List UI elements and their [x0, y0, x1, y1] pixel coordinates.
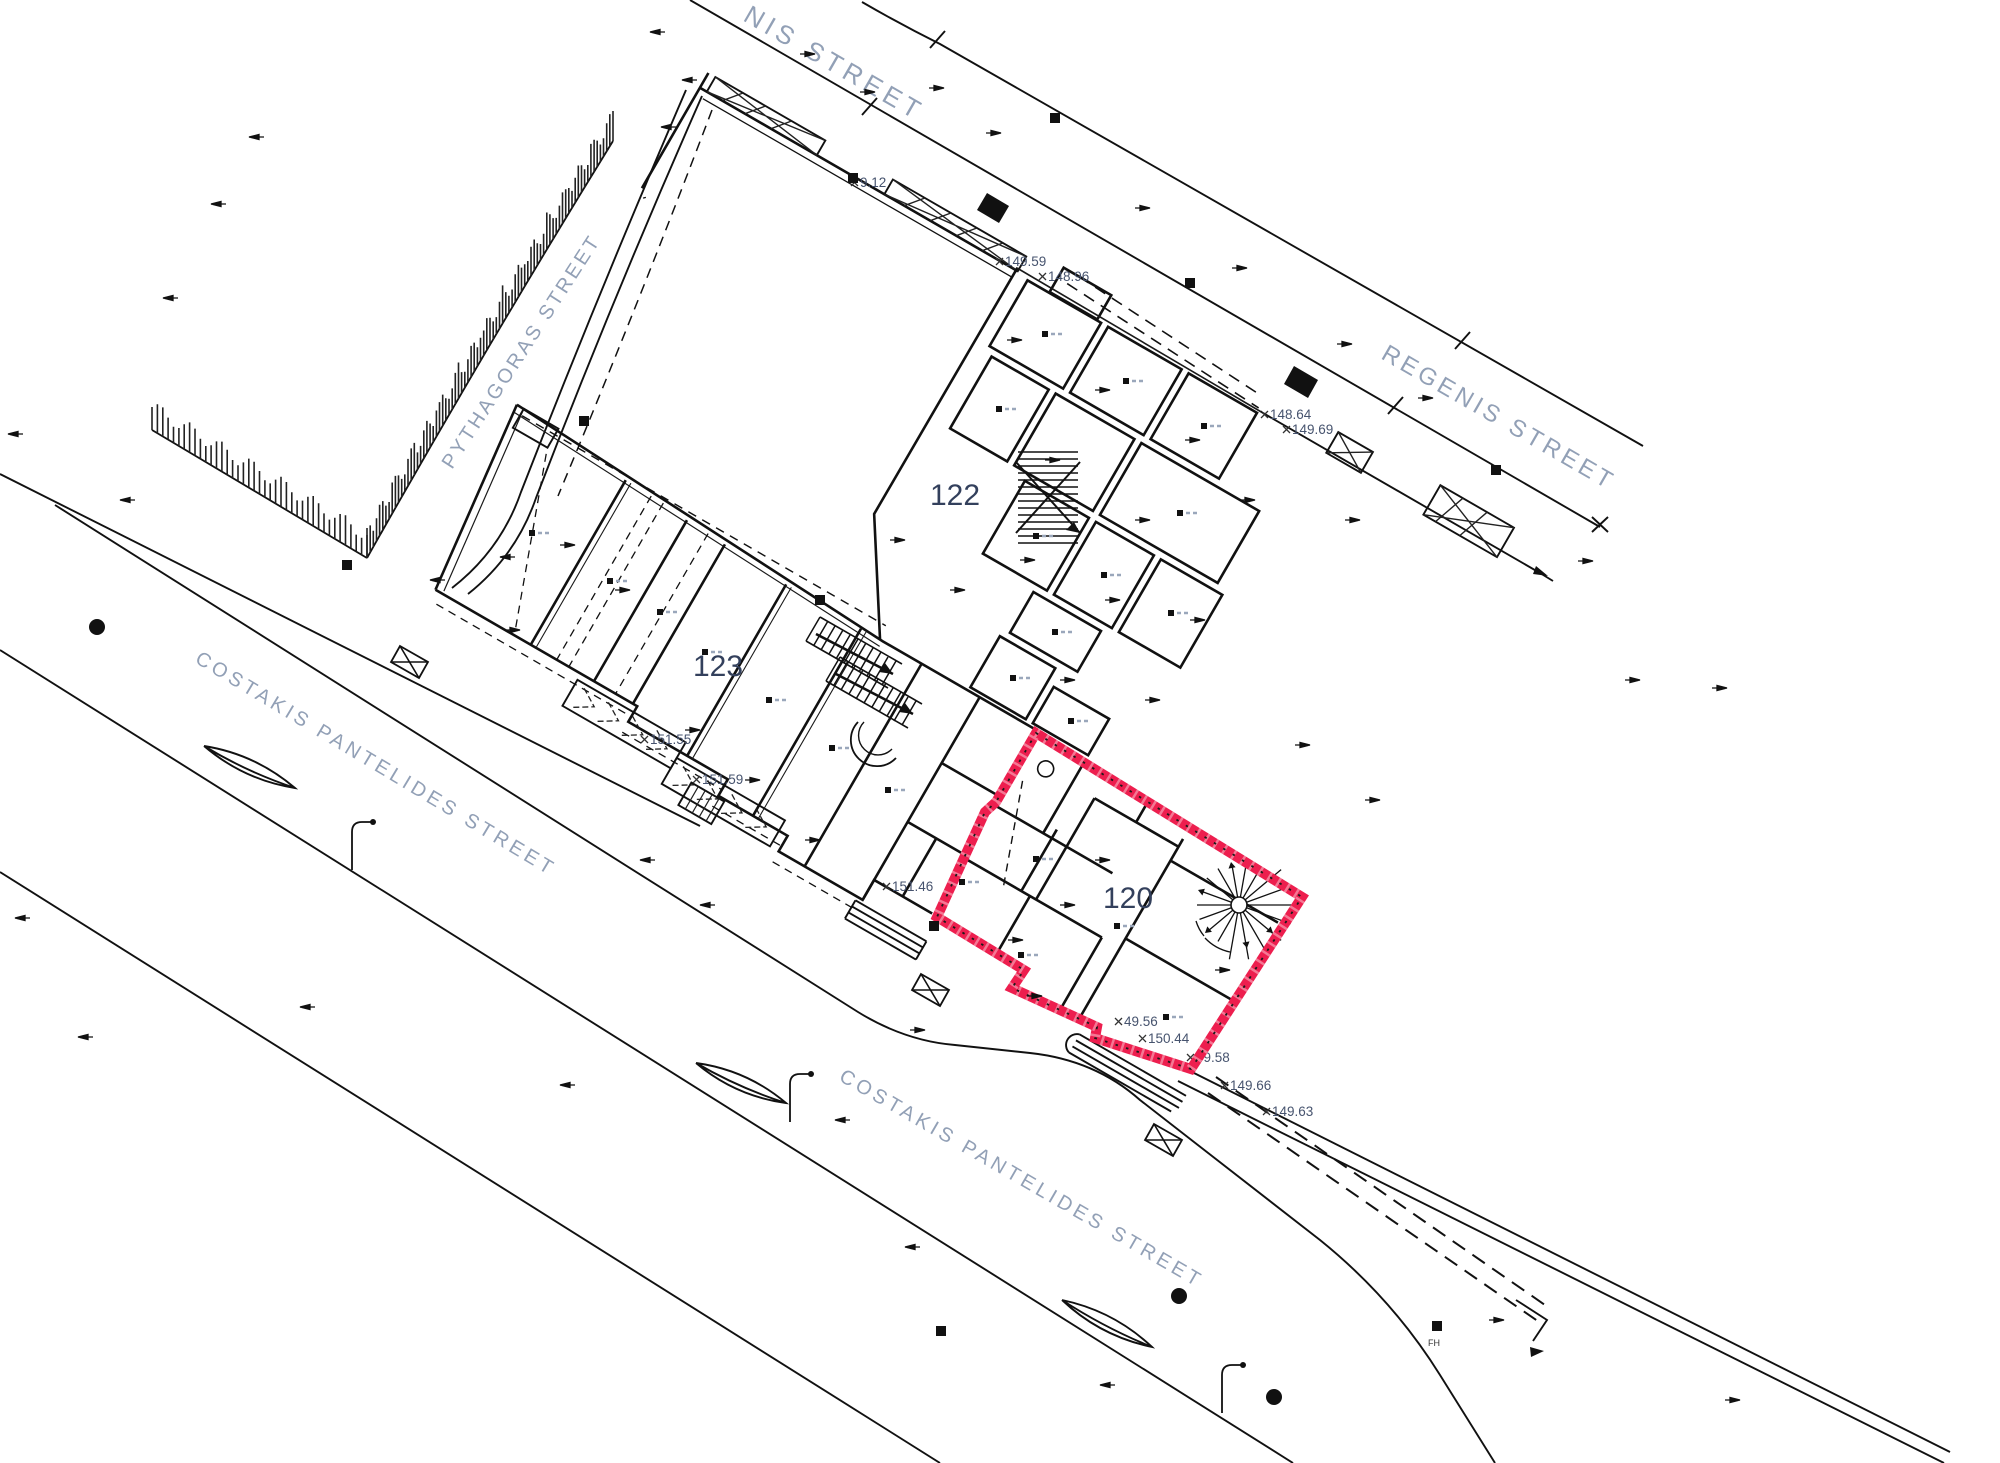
svg-text:151.46: 151.46 [892, 879, 933, 894]
svg-text:122: 122 [930, 479, 980, 512]
svg-text:150.44: 150.44 [1148, 1031, 1190, 1046]
svg-text:9.12: 9.12 [860, 175, 886, 190]
svg-text:149.63: 149.63 [1272, 1104, 1313, 1119]
svg-text:149.59: 149.59 [1005, 254, 1046, 269]
svg-text:151.55: 151.55 [650, 732, 691, 747]
svg-text:149.69: 149.69 [1292, 422, 1333, 437]
svg-text:120: 120 [1103, 882, 1153, 915]
svg-text:149.66: 149.66 [1230, 1078, 1271, 1093]
svg-text:151.59: 151.59 [702, 772, 743, 787]
svg-text:49.56: 49.56 [1124, 1014, 1158, 1029]
svg-text:123: 123 [693, 650, 743, 683]
svg-text:FH: FH [1428, 1338, 1440, 1348]
svg-text:148.96: 148.96 [1048, 269, 1089, 284]
svg-text:148.64: 148.64 [1270, 407, 1312, 422]
